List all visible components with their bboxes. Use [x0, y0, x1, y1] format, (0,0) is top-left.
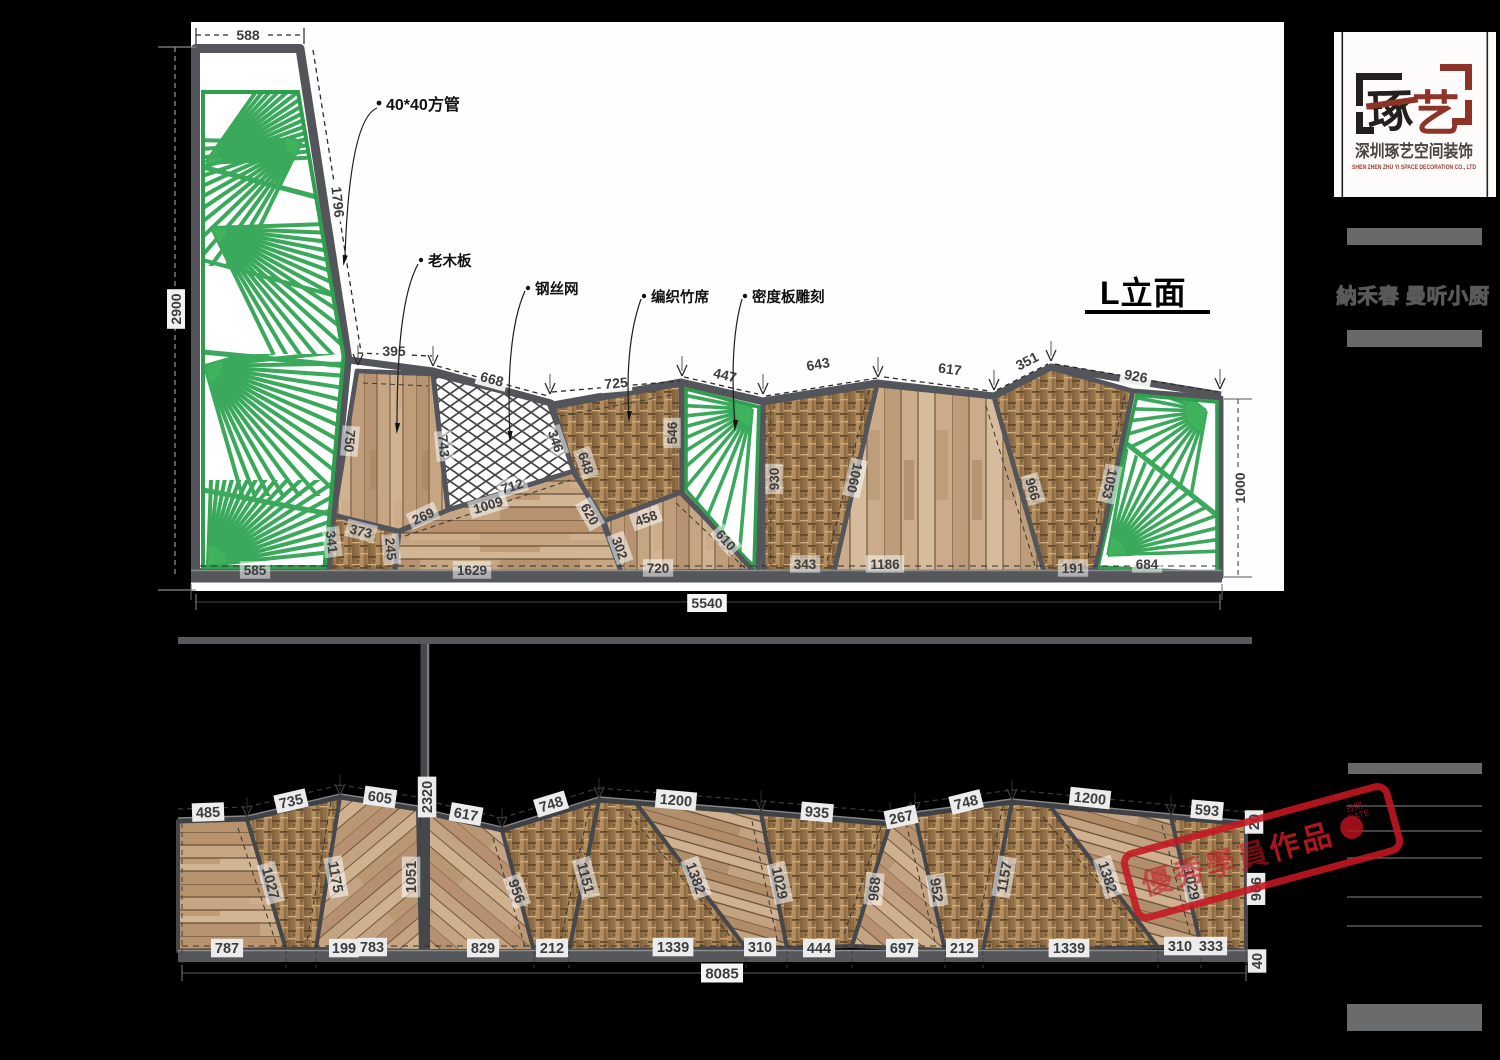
svg-text:743: 743: [435, 434, 452, 458]
svg-text:444: 444: [807, 941, 831, 957]
svg-text:343: 343: [794, 557, 817, 572]
svg-text:老木板: 老木板: [427, 252, 472, 270]
svg-text:1200: 1200: [1073, 790, 1107, 809]
svg-text:40*40方管: 40*40方管: [386, 95, 460, 114]
svg-text:212: 212: [950, 941, 974, 957]
svg-text:191: 191: [1062, 561, 1085, 576]
svg-text:968: 968: [866, 876, 884, 902]
svg-text:585: 585: [244, 563, 267, 578]
svg-text:546: 546: [665, 421, 680, 444]
svg-text:深圳琢艺空间装饰: 深圳琢艺空间装饰: [1355, 141, 1473, 161]
svg-text:编织竹席: 编织竹席: [651, 288, 709, 306]
svg-text:588: 588: [236, 27, 260, 43]
svg-text:5540: 5540: [691, 595, 722, 611]
svg-text:829: 829: [471, 941, 495, 957]
svg-text:787: 787: [215, 941, 239, 957]
svg-text:艺: 艺: [1412, 88, 1460, 141]
svg-text:485: 485: [196, 805, 221, 822]
svg-text:310: 310: [1168, 939, 1192, 955]
svg-text:952: 952: [926, 877, 945, 903]
svg-text:720: 720: [647, 561, 670, 576]
svg-text:钢丝网: 钢丝网: [535, 280, 579, 298]
svg-text:1339: 1339: [1053, 941, 1085, 957]
svg-text:395: 395: [382, 343, 406, 359]
svg-text:245: 245: [382, 537, 399, 561]
svg-text:310: 310: [748, 940, 772, 956]
svg-text:納禾春 曼听小厨: 納禾春 曼听小厨: [1336, 284, 1489, 308]
svg-text:750: 750: [341, 429, 358, 453]
svg-text:935: 935: [804, 804, 830, 822]
svg-text:8085: 8085: [705, 965, 738, 982]
svg-text:密度板雕刻: 密度板雕刻: [752, 288, 825, 306]
svg-text:2320: 2320: [420, 781, 436, 813]
svg-text:341: 341: [323, 530, 341, 555]
svg-text:617: 617: [937, 360, 962, 379]
svg-text:684: 684: [1136, 557, 1159, 572]
svg-text:1200: 1200: [659, 792, 693, 811]
svg-text:1339: 1339: [657, 940, 689, 956]
svg-text:725: 725: [604, 374, 629, 392]
svg-text:SHEN ZHEN ZHU YI SPACE DECORAT: SHEN ZHEN ZHU YI SPACE DECORATION CO., L…: [1352, 164, 1476, 171]
svg-text:1051: 1051: [404, 861, 420, 893]
svg-text:1186: 1186: [870, 557, 900, 572]
svg-text:40: 40: [1250, 953, 1266, 969]
svg-text:199: 199: [332, 941, 356, 957]
svg-text:212: 212: [540, 941, 564, 957]
svg-text:1796: 1796: [328, 186, 347, 219]
svg-text:琢: 琢: [1366, 84, 1414, 138]
svg-text:593: 593: [1194, 802, 1220, 820]
svg-text:605: 605: [367, 789, 393, 808]
svg-text:2900: 2900: [168, 293, 184, 324]
svg-text:1000: 1000: [1232, 472, 1248, 503]
svg-text:930: 930: [767, 468, 782, 491]
svg-text:783: 783: [360, 940, 384, 956]
svg-text:1629: 1629: [457, 563, 487, 578]
svg-text:697: 697: [890, 941, 914, 957]
svg-text:333: 333: [1199, 939, 1223, 955]
svg-text:L立面: L立面: [1100, 275, 1187, 311]
